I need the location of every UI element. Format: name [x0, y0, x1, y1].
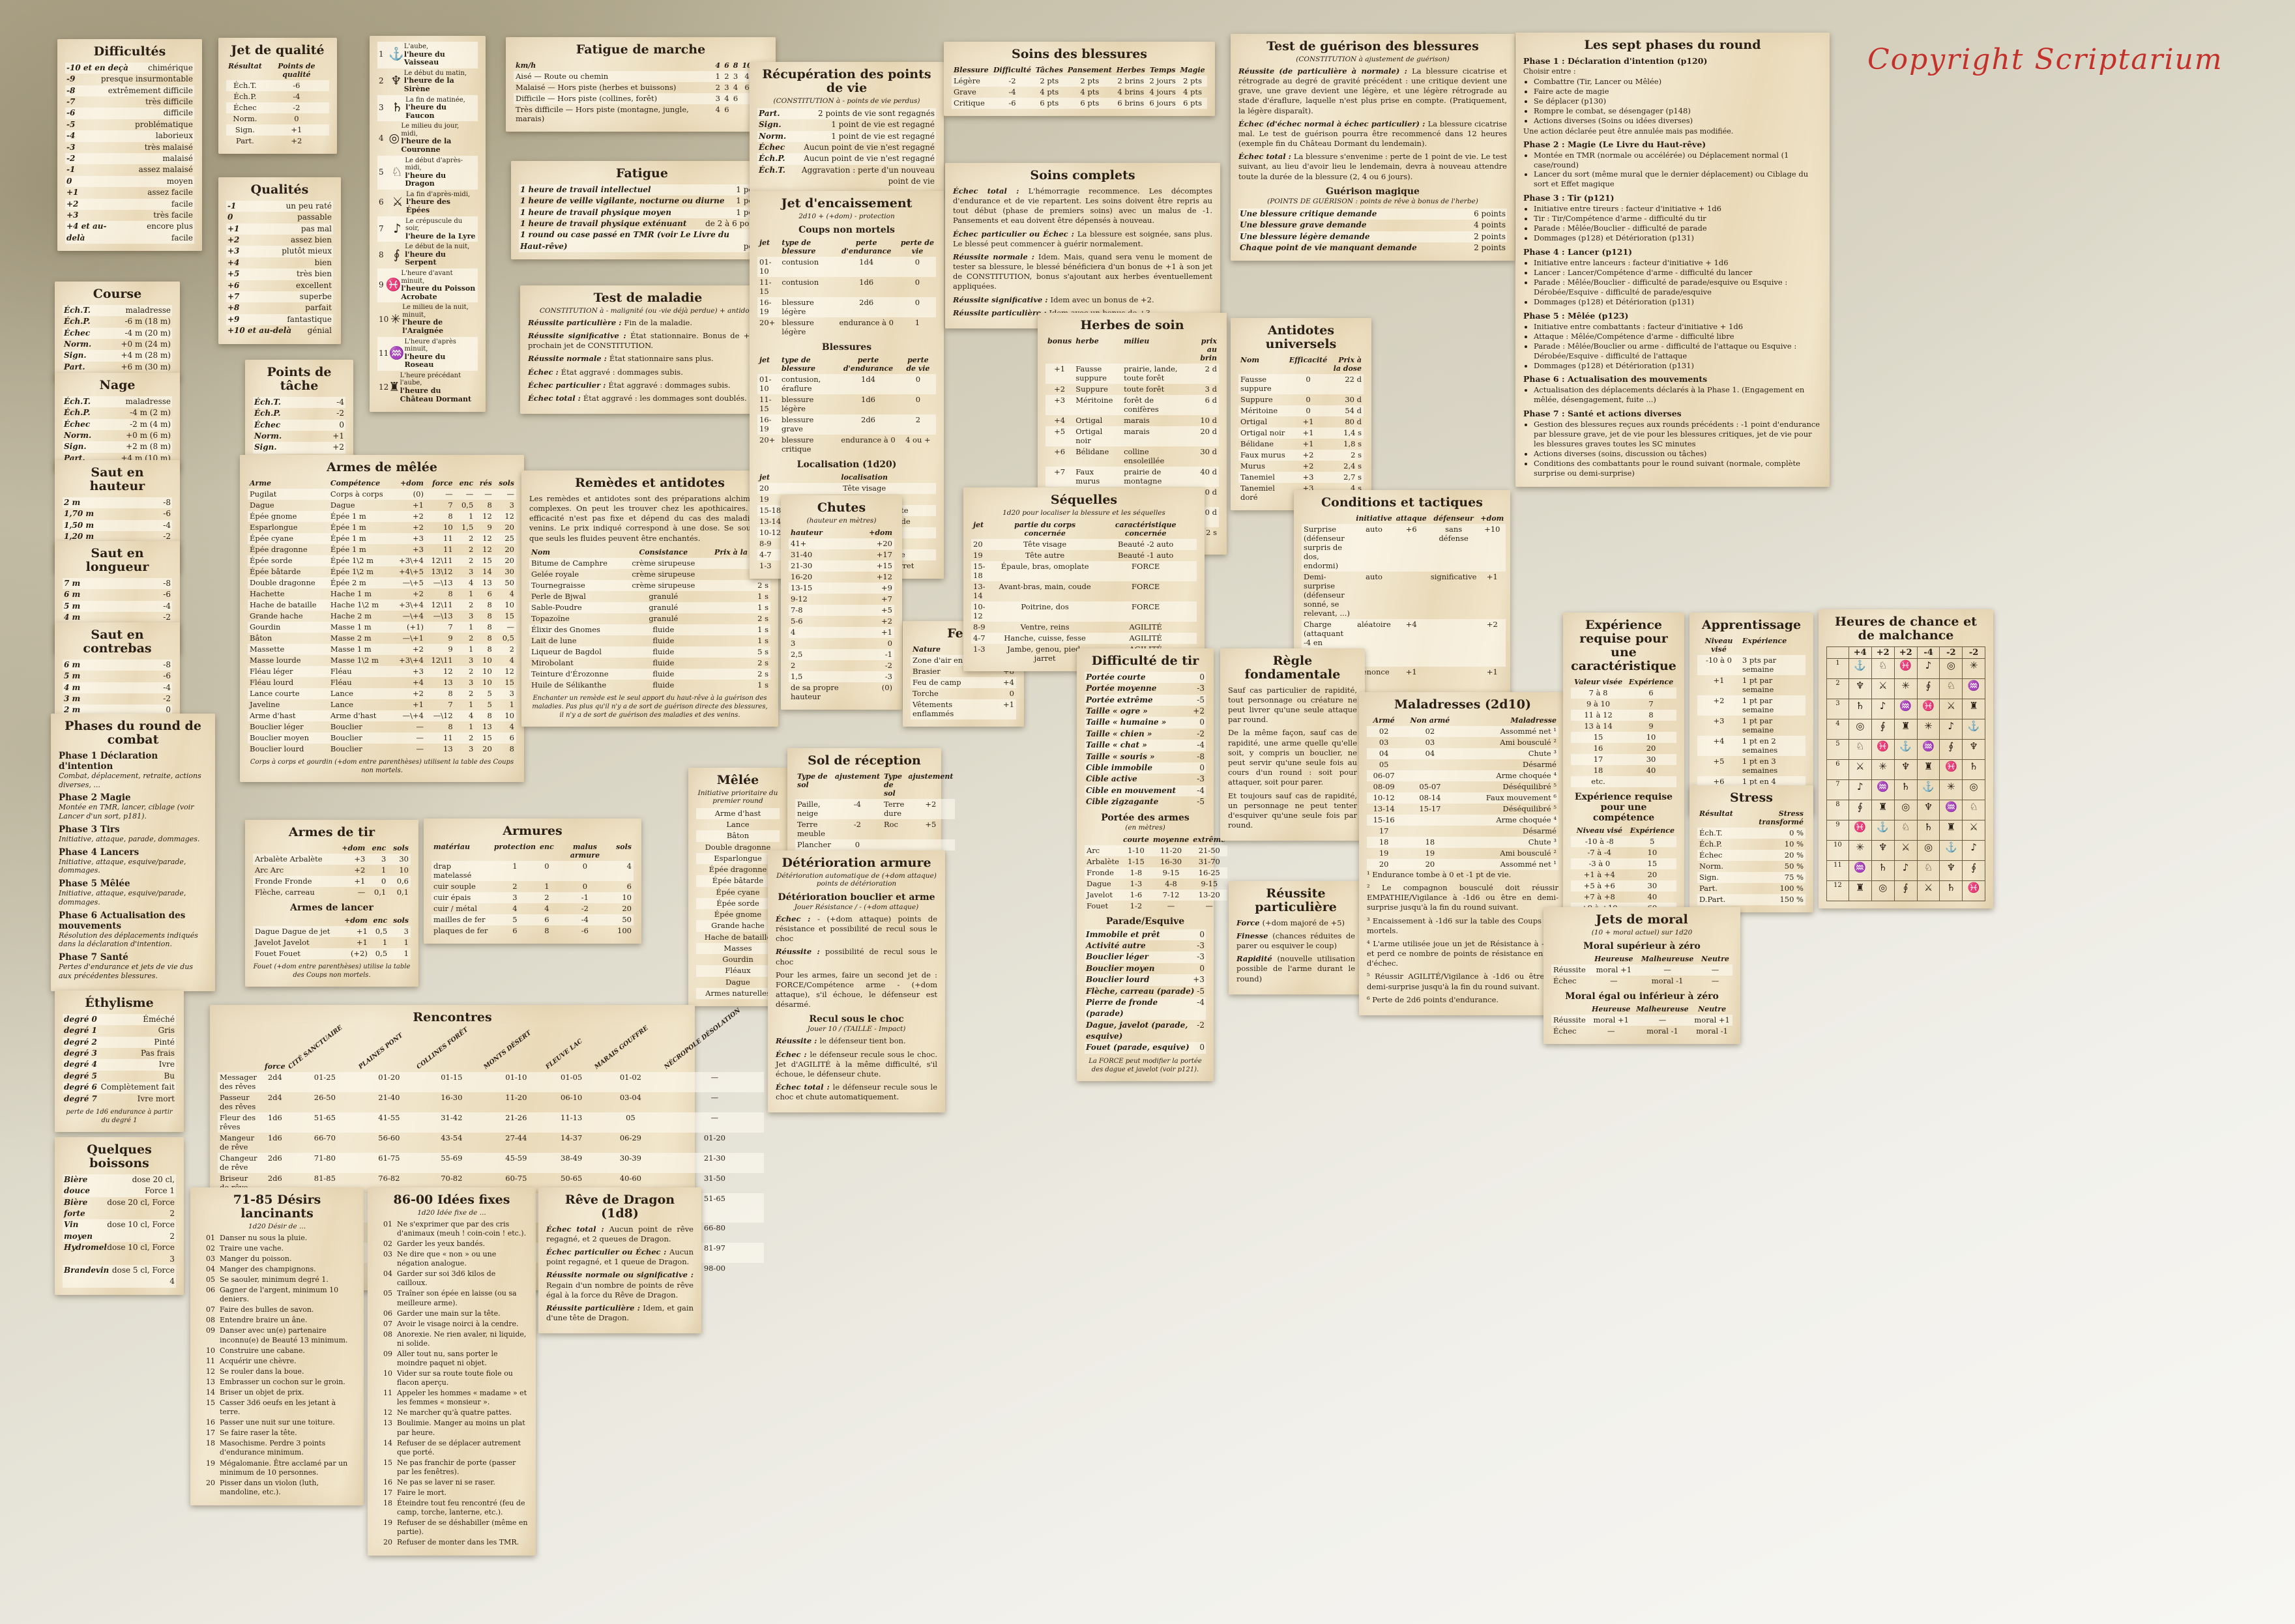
- table-cell: 61-75: [360, 1153, 418, 1173]
- table-cell: 0: [899, 257, 936, 277]
- modifier-header: -2: [1940, 646, 1963, 658]
- table-cell: Javelot: [1085, 890, 1121, 901]
- kv-label: Portée extrême: [1086, 695, 1153, 706]
- table-cell: +3: [393, 533, 426, 544]
- paragraph-lead: Échec particulier ou Échec :: [953, 229, 1077, 239]
- kv-row: Une blessure légère demande2 points: [1238, 231, 1507, 242]
- kv-value: plutôt mieux: [282, 246, 332, 257]
- table-cell: 12\11: [426, 655, 455, 666]
- recuperation-vie-kv-list: Part.2 points de vie sont regagnésSign.1…: [757, 108, 936, 188]
- kv-value: -6 m (18 m): [124, 316, 171, 327]
- table-cell: 2: [455, 732, 476, 744]
- card-reve-de-dragon: Rêve de Dragon (1d8)Échec total : Aucun …: [538, 1187, 701, 1333]
- table-row: 17Désarmé: [1367, 826, 1558, 837]
- table-cell: contusion: [780, 257, 834, 277]
- kv-label: Portée moyenne: [1086, 683, 1156, 694]
- table-cell: Éch.T.: [1697, 828, 1735, 839]
- table-cell: 11-15: [757, 277, 780, 297]
- table-cell: +5: [1697, 756, 1740, 776]
- table-row: Épée cyaneÉpée 1 m+31121225: [248, 533, 516, 544]
- combat-phase: Phase 3 TirsInitiative, attaque, parade,…: [59, 824, 207, 844]
- table-cell: 10: [1628, 847, 1676, 858]
- column-header: type de blessure: [780, 238, 834, 257]
- table-cell: 16-19: [757, 297, 780, 317]
- table-head: km/h4681012: [514, 61, 768, 71]
- column-header: Maladresse: [1459, 716, 1559, 726]
- phase-bullet: Actions diverses (soins, discussion ou t…: [1534, 449, 1822, 459]
- table-row: Lance courteLance+28253: [248, 688, 516, 699]
- table-cell: +3: [393, 666, 426, 677]
- table-head: ArmeCompétence+domforceencréssols: [248, 478, 516, 489]
- column-header: rés: [475, 478, 494, 489]
- card-recuperation-vie: Récupération des points de vie(CONSTITUT…: [750, 62, 944, 195]
- table-row: Tournegraissecrème sirupeuse2 s: [529, 580, 770, 591]
- deterioration-armure-title: Détérioration armure: [776, 856, 937, 870]
- grid-corner: [1827, 646, 1849, 658]
- table-row: +1 à +420: [1571, 869, 1676, 880]
- column-header: Pansement: [1065, 65, 1114, 76]
- card-heures-du-jour: 1⚓L'aube,l'heure du Vaisseau2♆Le début d…: [370, 36, 486, 412]
- deterioration-armure-subheading: Détérioration bouclier et arme: [776, 892, 937, 903]
- difficulte-tir-kv-list: Portée courte0Portée moyenne-3Portée ext…: [1085, 672, 1206, 808]
- table-head-row: Valeur viséeExpérience: [1571, 677, 1676, 688]
- table-cell: 54 d: [1329, 405, 1364, 416]
- jet-encaissement-subheading: Localisation (1d20): [757, 459, 936, 470]
- table-cell: Fléau: [329, 666, 393, 677]
- table-cell: 1: [370, 937, 389, 948]
- maladresses-paragraphs: ¹ Endurance tombe à 0 et -1 pt de vie.² …: [1367, 870, 1558, 1005]
- table-row: Méritoine054 d: [1238, 405, 1364, 416]
- table-cell: Grave: [952, 87, 991, 98]
- kv-label: Bière forte: [64, 1197, 107, 1220]
- recuperation-vie-subtitle: (CONSTITUTION à - points de vie perdus): [757, 97, 936, 105]
- kv-row: +10 et au-delàgénial: [226, 325, 333, 336]
- table-cell: Fléau: [329, 677, 393, 688]
- table-cell: (0): [867, 682, 894, 703]
- table-cell: moral +1: [1589, 1015, 1633, 1026]
- kv-label: Part.: [64, 362, 85, 373]
- table-cell: 1-10: [1121, 845, 1151, 856]
- table-cell: -4: [264, 91, 329, 102]
- table-row: 05Désarmé: [1367, 759, 1558, 770]
- column-header: 8: [731, 61, 740, 71]
- table-row: Fléau lourdFléau+41331015: [248, 677, 516, 688]
- hour-row: 2♆Le début du matin,l'heure de la Sirène: [377, 68, 478, 95]
- item-number: 03: [375, 1250, 392, 1268]
- card-idees-fixes: 86-00 Idées fixes1d20 Idée fixe de ...01…: [368, 1187, 536, 1556]
- table-cell: —: [494, 622, 516, 633]
- table-cell: Part.: [226, 136, 264, 147]
- reve-de-dragon-title: Rêve de Dragon (1d8): [546, 1193, 694, 1221]
- table-row: Lait de lunefluide1 s: [529, 635, 770, 646]
- table-cell: blessure légère: [780, 394, 836, 414]
- table-cell: 03: [1367, 737, 1401, 748]
- kv-value: 6 points: [1474, 209, 1506, 220]
- item-number: 04: [375, 1269, 392, 1288]
- column-header: sols: [494, 478, 516, 489]
- table-cell: 05-07: [1401, 781, 1459, 792]
- kv-value: -4: [163, 682, 171, 693]
- table-cell: 8: [475, 633, 494, 644]
- item-number: 02: [198, 1244, 215, 1253]
- table-row: Messager des rêves2d401-2501-2001-1501-1…: [218, 1072, 764, 1092]
- table-cell: 8: [494, 744, 516, 755]
- table-cell: 2,4 s: [1329, 461, 1364, 472]
- paragraph: Sauf cas particulier de rapidité, tout p…: [1228, 686, 1357, 725]
- table-cell: Poitrine, dos: [995, 602, 1094, 622]
- table-cell: 5: [1628, 836, 1676, 847]
- table-cell: 4: [789, 627, 867, 638]
- kv-value: -4: [1197, 740, 1205, 751]
- paragraph: Échec total : La blessure s'envenime : p…: [1238, 152, 1507, 182]
- card-test-guerison: Test de guérison des blessures(CONSTITUT…: [1231, 34, 1515, 261]
- kv-value: Ivre mort: [138, 1094, 175, 1105]
- paragraph: Pour les armes, faire un second jet de :…: [776, 970, 937, 1010]
- table-cell: Échec: [1697, 850, 1735, 861]
- table-cell: 17: [1571, 754, 1626, 765]
- table-row: de sa propre hauteur(0): [789, 682, 894, 703]
- table-row: Feu de camp+4: [911, 677, 1016, 688]
- item-text: Vider sur sa route toute fiole ou flacon…: [397, 1369, 528, 1387]
- card-jet-qualite: Jet de qualitéRésultatPoints de qualitéÉ…: [218, 38, 337, 154]
- table-cell: 13: [426, 677, 455, 688]
- grid-head-row: +4+2+2-4-2-2: [1827, 646, 1985, 658]
- hour-rune-cell: ♆: [1963, 739, 1985, 759]
- desirs-lancinants-subtitle: 1d20 Désir de ...: [198, 1223, 356, 1230]
- phase-heading: Phase 1 : Déclaration d'intention (p120): [1523, 56, 1822, 66]
- jets-moral-subtitle: (10 + moral actuel) sur 1d20: [1551, 929, 1732, 936]
- table-cell: +3\+4: [393, 555, 426, 566]
- kv-value: -4: [163, 520, 171, 531]
- table-cell: Perle de Bjwal: [529, 591, 624, 602]
- row-hour-number: 6: [1827, 759, 1849, 779]
- table-row: +5Ortigal noirmarais20 d: [1045, 426, 1219, 446]
- item-text: Entendre braire un âne.: [220, 1316, 307, 1325]
- table-row: Mirobolantfluide2 s: [529, 658, 770, 669]
- hour-rune-cell: ♪: [1917, 658, 1940, 678]
- hour-name: l'heure du Dragon: [405, 171, 446, 188]
- item-number: 03: [198, 1254, 215, 1264]
- table-cell: fluide: [624, 635, 703, 646]
- phase-bullet: Gestion des blessures reçues aux rounds …: [1534, 420, 1822, 449]
- table-cell: Épée 2 m: [329, 577, 393, 588]
- table-cell: crème sirupeuse: [624, 580, 703, 591]
- table-cell: 0: [900, 374, 936, 394]
- card-jets-moral: Jets de moral(10 + moral actuel) sur 1d2…: [1543, 907, 1740, 1044]
- item-text: Appeler les hommes « madame » et les fem…: [397, 1389, 528, 1407]
- table-row: Sign.75 %: [1697, 872, 1805, 883]
- column-header: Expérience: [1628, 826, 1676, 836]
- kv-value: -4: [163, 601, 171, 612]
- card-nage: NageÉch.T.maladresseÉch.P.-4 m (2 m)Éche…: [55, 373, 180, 471]
- row-hour-number: 7: [1827, 779, 1849, 800]
- table-row: 19Tête autreBeauté -1 auto: [971, 550, 1197, 561]
- kv-row: +8parfait: [226, 302, 333, 313]
- kv-label: +5: [227, 268, 239, 280]
- table-head-row: Niveau viséExpérience: [1697, 636, 1805, 655]
- table-cell: [1401, 770, 1459, 781]
- table-cell: moral -1: [1637, 976, 1698, 987]
- column-header: Temps: [1147, 65, 1178, 76]
- item-number: 01: [375, 1220, 392, 1238]
- table-row: Dague Dague de jet+10,53: [253, 926, 411, 937]
- table-row: 9 à 107: [1571, 699, 1676, 710]
- table-cell: de sa propre hauteur: [789, 682, 867, 703]
- table-cell: 3: [455, 655, 476, 666]
- table-cell: 8: [538, 925, 556, 936]
- table-cell: Dague Dague de jet: [253, 926, 340, 937]
- table-cell: 06-07: [1367, 770, 1401, 781]
- numbered-item: 20Refuser de monter dans les TMR.: [375, 1538, 528, 1547]
- table-cell: Désarmé: [1459, 759, 1559, 770]
- kv-label: Cible immobile: [1086, 762, 1152, 774]
- paragraph: Réussite particulière : Fin de la maladi…: [528, 318, 768, 328]
- table-cell: 0: [367, 876, 388, 887]
- table-cell: 0: [264, 113, 329, 124]
- card-phases-round-combat: Phases du round de combatPhase 1 Déclara…: [51, 714, 215, 991]
- table-cell: 2 pts: [1033, 76, 1065, 87]
- kv-label: Échec: [64, 419, 90, 430]
- table-head: bonusherbemilieuprix au brin: [1045, 336, 1219, 364]
- reussite-particuliere-paragraphs: Force (+dom majoré de +5)Finesse (chance…: [1236, 918, 1355, 984]
- table-row: 11-15contusion1d60: [757, 277, 936, 297]
- table-body: Bitume de Camphrecrème sirupeuse2 sGelée…: [529, 558, 770, 691]
- kv-value: 0: [1199, 762, 1205, 774]
- list-item: Dague: [696, 977, 780, 988]
- table-cell: 11: [426, 544, 455, 555]
- table-cell: 1: [455, 721, 476, 732]
- kv-value: très bien: [297, 268, 332, 280]
- table-cell: Épée 1 m: [329, 522, 393, 533]
- item-text: Garder une main sur la tête.: [397, 1309, 501, 1318]
- kv-label: Éch.P.: [64, 316, 91, 327]
- kv-label: degré 2: [64, 1037, 97, 1048]
- kv-value: très malaisé: [145, 142, 193, 153]
- combat-phase: Phase 7 SantéPertes d'endurance et jets …: [59, 952, 207, 981]
- table-head-row: jettype de blessureperte d'endurancepert…: [757, 238, 936, 257]
- table-row: 4+1: [789, 627, 894, 638]
- kv-label: -4: [66, 130, 75, 141]
- table-cell: 4 brins: [1114, 87, 1147, 98]
- hour-row: 5♘Le début d'après-midi,l'heure du Drago…: [377, 156, 478, 190]
- column-header: +dom: [867, 528, 894, 538]
- table-cell: Ortigal noir: [1074, 426, 1122, 446]
- kv-label: 5 m: [64, 601, 80, 612]
- table-cell: 05: [596, 1112, 665, 1133]
- table-cell: 3 pts par semaine: [1740, 655, 1805, 675]
- table-cell: 9-15: [1151, 867, 1191, 878]
- table-cell: 1-2: [1121, 901, 1151, 912]
- table-cell: -4: [991, 87, 1034, 98]
- table-row: Flèche, carreau—0,10,1: [253, 887, 411, 898]
- table-cell: 6: [475, 588, 494, 600]
- table-row: Fronde Fronde+100,6: [253, 876, 411, 887]
- kv-row: ÉchecAucun point de vie n'est regagné: [757, 142, 936, 153]
- kv-label: 4 m: [64, 612, 80, 623]
- table-cell: Méritoine: [1238, 405, 1287, 416]
- column-header: MONTS DÉSERT: [485, 1028, 547, 1072]
- kv-label: Flèche, carreau (parade): [1086, 986, 1194, 997]
- grid-row: 5♘♓⚓♒∮♆: [1827, 739, 1985, 759]
- table-cell: 2: [455, 688, 476, 699]
- list-item: Lance: [696, 819, 780, 830]
- table-cell: —: [665, 1072, 764, 1092]
- difficulte-tir-subtitle: (en mètres): [1085, 824, 1206, 832]
- table-cell: 5: [492, 914, 538, 925]
- table-cell: 56-60: [360, 1133, 418, 1153]
- table-head: jetlocalisation: [757, 472, 936, 483]
- table-cell: 1 pt par semaine: [1740, 716, 1805, 736]
- table-row: Double dragonneÉpée 2 m—\+5—\1341350: [248, 577, 516, 588]
- kv-value: -8: [163, 497, 171, 508]
- phase-bullet: Actions diverses (Soins ou idées diverse…: [1534, 116, 1822, 126]
- phase-heading: Phase 1 Déclaration d'intention: [59, 751, 207, 772]
- table-row: Sable-Poudregranulé1 s: [529, 602, 770, 613]
- hour-rune-cell: ♜: [1849, 880, 1871, 901]
- table-cell: Ventre, reins: [995, 622, 1094, 633]
- kv-value: 1 point de vie est regagné: [831, 131, 935, 142]
- melee-initiative-list: Arme d'hastLanceBâtonDouble dragonneEspa…: [696, 808, 780, 999]
- kv-row: Échec-4 m (20 m): [63, 328, 172, 339]
- grid-row: 4◎∮♜✳♪⚓: [1827, 719, 1985, 739]
- table-cell: 4 pts: [1033, 87, 1065, 98]
- table-cell: +2: [393, 688, 426, 699]
- item-number: 13: [198, 1378, 215, 1387]
- kv-label: Bouclier lourd: [1086, 974, 1149, 985]
- list-item: Épée dragonne: [696, 864, 780, 875]
- kv-row: Portée courte0: [1085, 672, 1206, 683]
- paragraph-lead: Échec total :: [528, 394, 583, 403]
- kv-value: 2 points: [1474, 231, 1506, 242]
- row-hour-number: 1: [1827, 658, 1849, 678]
- kv-label: Vin moyen: [64, 1219, 106, 1242]
- kv-row: +2assez bien: [226, 235, 333, 246]
- kv-row: Cible en mouvement-4: [1085, 785, 1206, 796]
- table-cell: 6: [722, 104, 731, 124]
- experience-caracteristique-title: Expérience requise pour une caractéristi…: [1571, 618, 1676, 673]
- paragraph: Réussite particulière : Idem, et gain d'…: [546, 1303, 694, 1323]
- item-number: 09: [198, 1326, 215, 1344]
- table-cell: 4 pts: [1178, 87, 1207, 98]
- kv-value: difficile: [164, 108, 193, 119]
- kv-row: +5très bien: [226, 268, 333, 280]
- table-row: 20Tête visageBeauté -2 auto: [971, 539, 1197, 550]
- table-row: Fleur des rêves1d651-6541-5531-4221-2611…: [218, 1112, 764, 1133]
- table-cell: 20: [1367, 859, 1401, 870]
- phase-bullets: Initiative entre tireurs : facteur d'ini…: [1523, 204, 1822, 243]
- paragraph: ⁶ Perte de 2d6 points d'endurance.: [1367, 995, 1558, 1005]
- table-row: Grande hacheHache 2 m—\+4—\133815: [248, 611, 516, 622]
- column-header: Non armé: [1401, 716, 1459, 726]
- regle-fondamentale-title: Règle fondamentale: [1228, 654, 1357, 682]
- armes-tir-table: +domencsolsDague Dague de jet+10,53Javel…: [253, 916, 411, 959]
- table-cell: Sign.: [226, 124, 264, 136]
- table-cell: Fouet: [1085, 901, 1121, 912]
- table-cell: +15: [867, 560, 894, 572]
- phase-heading: Phase 2 : Magie (Le Livre du Haut-rêve): [1523, 139, 1822, 149]
- table-cell: 7-12: [1151, 890, 1191, 901]
- recuperation-vie-title: Récupération des points de vie: [757, 68, 936, 95]
- hour-row: 6⚔La fin d'après-midi,l'heure des Épées: [377, 190, 478, 216]
- kv-value: -2: [1197, 729, 1205, 740]
- kv-row: 0passable: [226, 212, 333, 223]
- table-cell: 11-20: [1151, 845, 1191, 856]
- table-cell: 20: [494, 522, 516, 533]
- row-hour-number: 12: [1827, 880, 1849, 901]
- table-cell: 31-70: [1191, 856, 1227, 867]
- table-row: 4-7Hanche, cuisse, fesseAGILITÉ: [971, 633, 1197, 644]
- item-text: Garder les yeux bandés.: [397, 1240, 485, 1249]
- table-row: Faux murus+22 s: [1238, 450, 1364, 461]
- hour-rune-cell: ♘: [1894, 820, 1917, 840]
- table-head-row: initiativeattaquedéfenseur+dom: [1302, 514, 1506, 524]
- phase-bullets: Gestion des blessures reçues aux rounds …: [1523, 420, 1822, 478]
- table-cell: —: [665, 1092, 764, 1112]
- table-cell: 40 d: [1189, 467, 1219, 487]
- kv-label: +8: [227, 302, 239, 313]
- row-hour-number: 10: [1827, 840, 1849, 860]
- column-header: [218, 1028, 260, 1072]
- table-cell: fluide: [624, 658, 703, 669]
- table-cell: 21-30: [789, 560, 867, 572]
- kv-row: Éch.T.Aggravation : perte d'un nouveau p…: [757, 165, 936, 188]
- phase-heading: Phase 3 Tirs: [59, 824, 207, 835]
- kv-label: Une blessure critique demande: [1240, 209, 1377, 220]
- item-text: Casser 3d6 oeufs en les jetant à terre.: [220, 1399, 356, 1417]
- kv-label: 7 m: [64, 578, 80, 589]
- kv-row: 6 m-8: [63, 660, 172, 671]
- table-cell: +3\+4: [393, 600, 426, 611]
- kv-value: très difficile: [145, 96, 193, 108]
- kv-value: très facile: [153, 210, 193, 221]
- kv-row: Bière fortedose 20 cl, Force 2: [63, 1197, 176, 1220]
- kv-value: -6: [163, 671, 171, 682]
- table-row: Échec—moral -1—: [1551, 976, 1732, 987]
- kv-label: +2: [66, 199, 78, 210]
- chutes-table: hauteur+dom41++2031-40+1721-30+1516-20+1…: [789, 528, 894, 703]
- numbered-item: 04Garder sur soi 3d6 kilos de cailloux.: [375, 1269, 528, 1288]
- table-cell: endurance à 0: [836, 435, 900, 455]
- kv-value: +0 m (24 m): [121, 339, 171, 350]
- hour-rune-cell: ♒: [1871, 779, 1894, 800]
- modifier-header: +2: [1894, 646, 1917, 658]
- table-cell: 10: [614, 892, 634, 903]
- table-cell: 150 %: [1735, 894, 1805, 905]
- table-cell: 6: [731, 93, 740, 104]
- table-cell: -2: [991, 76, 1034, 87]
- fatigue-kv-list: 1 heure de travail intellectuel1 point1 …: [519, 184, 765, 252]
- table-cell: 20: [494, 555, 516, 566]
- table-body: Aisé — Route ou chemin12346Malaisé — Hor…: [514, 71, 768, 124]
- table-cell: +12: [867, 572, 894, 583]
- hour-number: 12: [379, 383, 388, 392]
- table-head: RésultatStress transformé: [1697, 809, 1805, 828]
- table-cell: 03-04: [596, 1092, 665, 1112]
- table-cell: 26-50: [289, 1092, 360, 1112]
- item-text: Aller tout nu, sans porter le moindre pa…: [397, 1350, 528, 1368]
- phase-detail: Montée en TMR, lancer, ciblage (voir Lan…: [59, 803, 207, 821]
- table-cell: Esparlongue: [248, 522, 329, 533]
- item-number: 19: [375, 1518, 392, 1537]
- paragraph-lead: Rapidité: [1236, 954, 1277, 963]
- kv-row: degré 1Gris: [63, 1025, 176, 1036]
- soins-blessures-table: BlessureDifficultéTâchesPansementHerbesT…: [952, 65, 1207, 109]
- numbered-item: 02Traire une vache.: [198, 1244, 356, 1253]
- table-cell: prairie de montagne: [1122, 467, 1189, 487]
- deterioration-armure-subtitle: Jouer Résistance / - (+dom attaque): [776, 903, 937, 911]
- antidotes-universels-title: Antidotes universels: [1238, 324, 1364, 351]
- grid-row: 7♪♒♄⚓✳◎: [1827, 779, 1985, 800]
